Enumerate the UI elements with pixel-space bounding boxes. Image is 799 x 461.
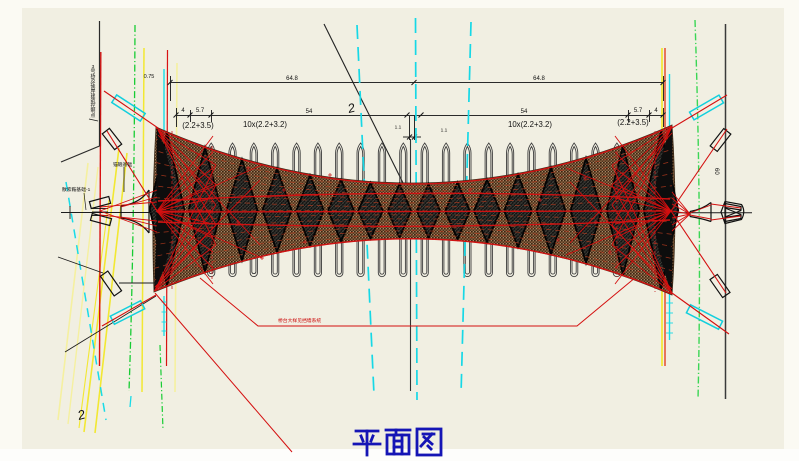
svg-text:3号桥及硅岸建筑控制点: 3号桥及硅岸建筑控制点: [91, 64, 96, 119]
svg-text:60: 60: [713, 168, 719, 175]
svg-text:54: 54: [306, 109, 313, 115]
svg-text:1.1: 1.1: [395, 125, 402, 131]
svg-text:5.7: 5.7: [196, 108, 205, 114]
svg-text:64.8: 64.8: [286, 76, 298, 82]
svg-text:(2.2+3.5): (2.2+3.5): [617, 118, 649, 127]
svg-text:5.7: 5.7: [634, 108, 643, 114]
svg-text:10x(2.2+3.2): 10x(2.2+3.2): [508, 120, 552, 129]
svg-text:0.75: 0.75: [144, 74, 155, 80]
svg-text:锚磇基础: 锚磇基础: [113, 161, 132, 168]
svg-text:10x(2.2+3.2): 10x(2.2+3.2): [243, 120, 287, 129]
svg-text:散索鞍基础-1: 散索鞍基础-1: [62, 186, 91, 193]
svg-text:54: 54: [521, 109, 528, 115]
svg-text:(2.2+3.5): (2.2+3.5): [182, 121, 214, 130]
svg-text:桥台大样见挡墙系统: 桥台大样见挡墙系统: [278, 317, 321, 324]
svg-text:1.1: 1.1: [441, 128, 448, 134]
svg-text:64.8: 64.8: [533, 76, 545, 82]
